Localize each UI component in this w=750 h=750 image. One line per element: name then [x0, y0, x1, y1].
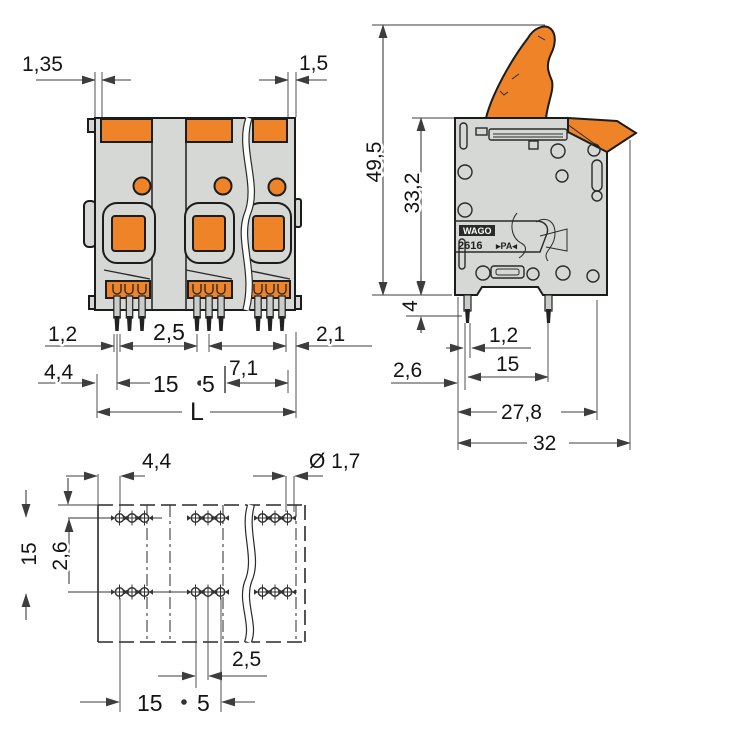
material-code: ▸PA◂ — [495, 241, 517, 251]
wire-entry-1 — [112, 216, 145, 251]
dim-front-pin-group: 5 — [202, 371, 215, 397]
series-number: 2616 — [458, 240, 482, 252]
dim-bottom-row-offset: 2,6 — [49, 541, 72, 570]
dim-front-pole-pitch: 15 — [153, 371, 179, 397]
bottom-view: 4,4 Ø 1,7 15 2,6 2,5 15 5 — [18, 450, 360, 716]
wire-entry-2 — [193, 216, 225, 251]
dim-front-lip-right: 1,5 — [299, 52, 328, 75]
solder-hole-pattern — [111, 511, 296, 600]
test-port-3 — [269, 179, 286, 196]
push-button-1 — [101, 119, 152, 142]
dim-front-pin-width: 1,2 — [48, 323, 77, 346]
brand-logo-text: WAGO — [463, 226, 492, 236]
dim-side-pin-length: 4 — [399, 300, 422, 312]
dim-side-pin-spacing: 15 — [496, 353, 519, 376]
front-body — [84, 118, 301, 331]
dim-bottom-pole-pitch: 15 — [137, 690, 163, 716]
drawing-canvas: 1,35 1,5 1,2 2,5 2,1 4,4 15 5 7,1 L — [0, 0, 750, 750]
bottom-dimensions: 4,4 Ø 1,7 15 2,6 2,5 15 5 — [18, 450, 360, 716]
dim-bottom-hole-diameter: Ø 1,7 — [309, 450, 360, 473]
push-button-3 — [253, 119, 287, 142]
dim-side-total-depth: 32 — [533, 432, 556, 455]
dim-front-total-length: L — [190, 398, 204, 426]
dim-front-pin-pitch: 2,5 — [153, 319, 185, 345]
front-view: 1,35 1,5 1,2 2,5 2,1 4,4 15 5 7,1 L — [22, 52, 372, 426]
dim-bottom-edge-to-hole: 4,4 — [142, 450, 172, 473]
dim-bottom-hole-pitch: 2,5 — [232, 648, 261, 671]
test-port-2 — [215, 178, 232, 195]
dim-side-body-depth: 27,8 — [501, 401, 542, 424]
test-port-1 — [134, 178, 151, 195]
side-solder-pins — [464, 295, 552, 323]
front-solder-pins — [114, 296, 285, 331]
release-lever — [486, 27, 555, 118]
dim-front-right-offset: 2,1 — [316, 323, 345, 346]
side-body: WAGO 2616 ▸PA◂ — [455, 27, 636, 323]
side-view: WAGO 2616 ▸PA◂ — [363, 25, 636, 455]
dim-bottom-pin-group: 5 — [197, 690, 210, 716]
wire-entry-3 — [253, 216, 284, 251]
push-button-2 — [186, 119, 232, 142]
dim-dot — [181, 699, 187, 705]
break-line — [242, 505, 255, 642]
technical-drawing-page: 1,35 1,5 1,2 2,5 2,1 4,4 15 5 7,1 L — [0, 0, 750, 750]
bottom-outline — [68, 505, 305, 642]
dim-side-total-height: 49,5 — [363, 142, 386, 183]
dim-side-edge-offset: 2,6 — [393, 359, 422, 382]
dim-front-edge-to-pin: 4,4 — [44, 361, 74, 384]
dim-side-body-height: 33,2 — [401, 173, 424, 214]
dim-front-group-width: 7,1 — [229, 357, 258, 380]
dim-side-pin-width: 1,2 — [489, 324, 518, 347]
dim-bottom-row-spacing: 15 — [18, 542, 41, 565]
dim-front-lip-left: 1,35 — [22, 53, 63, 76]
